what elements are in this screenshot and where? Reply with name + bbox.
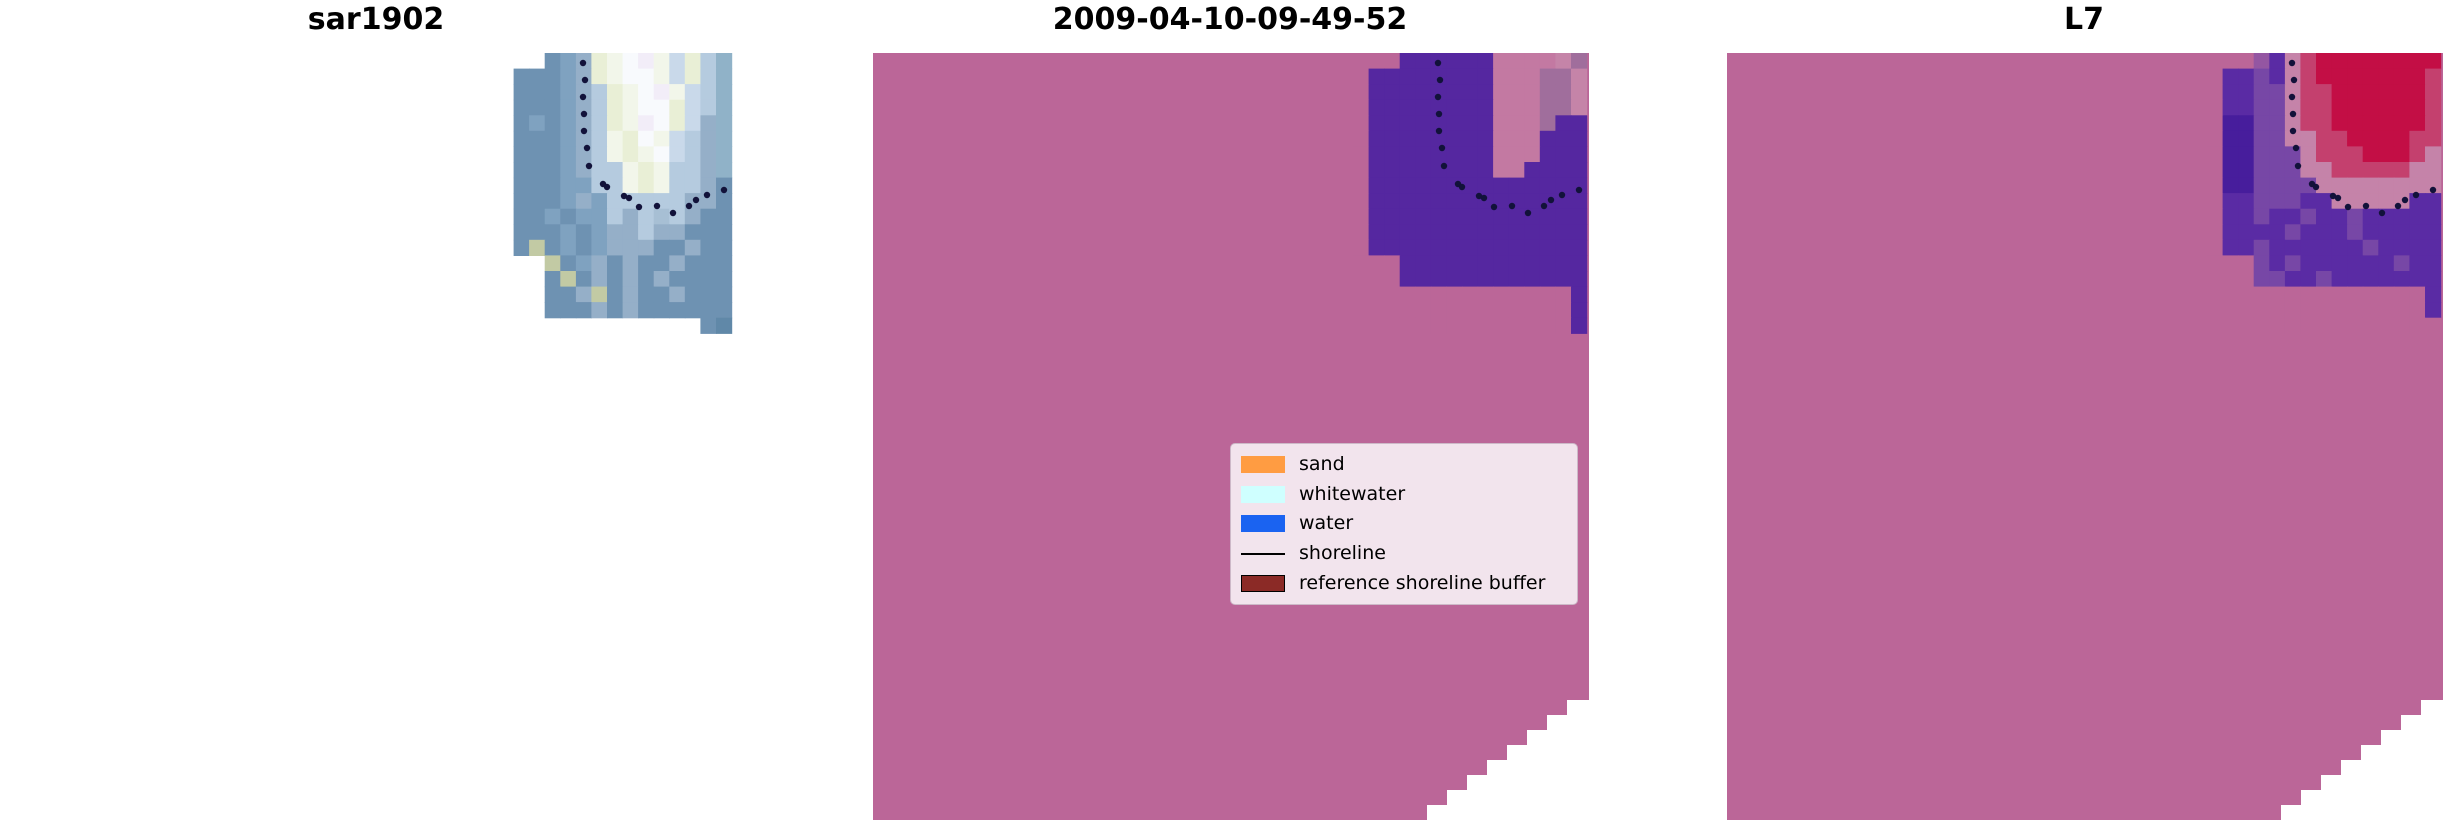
shoreline-dot — [1541, 203, 1547, 209]
sar-raster-canvas — [18, 53, 734, 820]
shoreline-dot — [1435, 94, 1441, 100]
legend-swatch-shoreline — [1241, 553, 1285, 555]
shoreline-dot — [1576, 187, 1582, 193]
shoreline-dot — [1525, 210, 1531, 216]
shoreline-dot — [2289, 60, 2295, 66]
classified-raster-canvas — [873, 53, 1589, 820]
shoreline-dot — [1436, 111, 1442, 117]
shoreline-dot — [670, 210, 676, 216]
shoreline-dot — [1481, 195, 1487, 201]
shoreline-dot — [721, 187, 727, 193]
shoreline-dot — [1559, 192, 1565, 198]
panel-l7-scene — [1727, 53, 2443, 820]
shoreline-dot — [581, 128, 587, 134]
shoreline-dot — [654, 203, 660, 209]
legend-item-label: water — [1299, 514, 1353, 533]
shoreline-dot — [1459, 184, 1465, 190]
shoreline-dot — [704, 192, 710, 198]
legend-item: sand — [1241, 450, 1567, 479]
shoreline-dot — [2290, 111, 2296, 117]
legend-item-label: whitewater — [1299, 485, 1405, 504]
shoreline-dot — [636, 204, 642, 210]
shoreline-dot — [2379, 210, 2385, 216]
shoreline-dot — [686, 203, 692, 209]
raster-image — [18, 53, 734, 820]
legend-swatch-sand — [1241, 456, 1285, 473]
panel-sar-image — [18, 53, 734, 820]
panel-title-date: 2009-04-10-09-49-52 — [1053, 2, 1408, 37]
l7-raster-canvas — [1727, 53, 2443, 820]
legend-item-label: sand — [1299, 455, 1345, 474]
shoreline-dot — [584, 145, 590, 151]
shoreline-dot — [2402, 197, 2408, 203]
shoreline-dot — [2430, 187, 2436, 193]
shoreline-dot — [582, 77, 588, 83]
legend-item: shoreline — [1241, 539, 1567, 568]
legend-swatch-water — [1241, 515, 1285, 532]
shoreline-dot — [2295, 163, 2301, 169]
legend-swatch-reference-shoreline-buffer — [1241, 575, 1285, 592]
shoreline-dot — [2290, 128, 2296, 134]
shoreline-dot — [1548, 197, 1554, 203]
shoreline-dot — [2291, 77, 2297, 83]
raster-image — [873, 53, 1589, 820]
shoreline-dot — [586, 163, 592, 169]
shoreline-dot — [580, 60, 586, 66]
shoreline-dot — [1436, 128, 1442, 134]
shoreline-dot — [1439, 145, 1445, 151]
raster-image — [1727, 53, 2443, 820]
legend: sandwhitewaterwatershorelinereference sh… — [1230, 443, 1578, 605]
legend-item: whitewater — [1241, 480, 1567, 509]
legend-item-label: shoreline — [1299, 544, 1386, 563]
shoreline-dot — [604, 184, 610, 190]
shoreline-dot — [2335, 195, 2341, 201]
shoreline-dot — [693, 197, 699, 203]
shoreline-dot — [1441, 163, 1447, 169]
legend-swatch-whitewater — [1241, 486, 1285, 503]
legend-item-label: reference shoreline buffer — [1299, 574, 1545, 593]
shoreline-dot — [2413, 192, 2419, 198]
shoreline-dot — [581, 111, 587, 117]
legend-item: water — [1241, 509, 1567, 538]
legend-item: reference shoreline buffer — [1241, 569, 1567, 598]
shoreline-dot — [2363, 203, 2369, 209]
shoreline-dot — [1437, 77, 1443, 83]
shoreline-dot — [1491, 204, 1497, 210]
shoreline-dot — [2395, 203, 2401, 209]
panel-classified-scene: sandwhitewaterwatershorelinereference sh… — [873, 53, 1589, 820]
shoreline-dot — [2345, 204, 2351, 210]
shoreline-dot — [2313, 184, 2319, 190]
shoreline-dot — [1509, 203, 1515, 209]
shoreline-dot — [1435, 60, 1441, 66]
shoreline-dot — [2289, 94, 2295, 100]
panel-title-l7: L7 — [2064, 2, 2104, 37]
shoreline-dot — [580, 94, 586, 100]
shoreline-dot — [626, 195, 632, 201]
figure: sar1902 2009-04-10-09-49-52 L7 sandwhite… — [0, 0, 2460, 834]
panel-title-sar: sar1902 — [308, 2, 444, 37]
shoreline-dot — [2293, 145, 2299, 151]
